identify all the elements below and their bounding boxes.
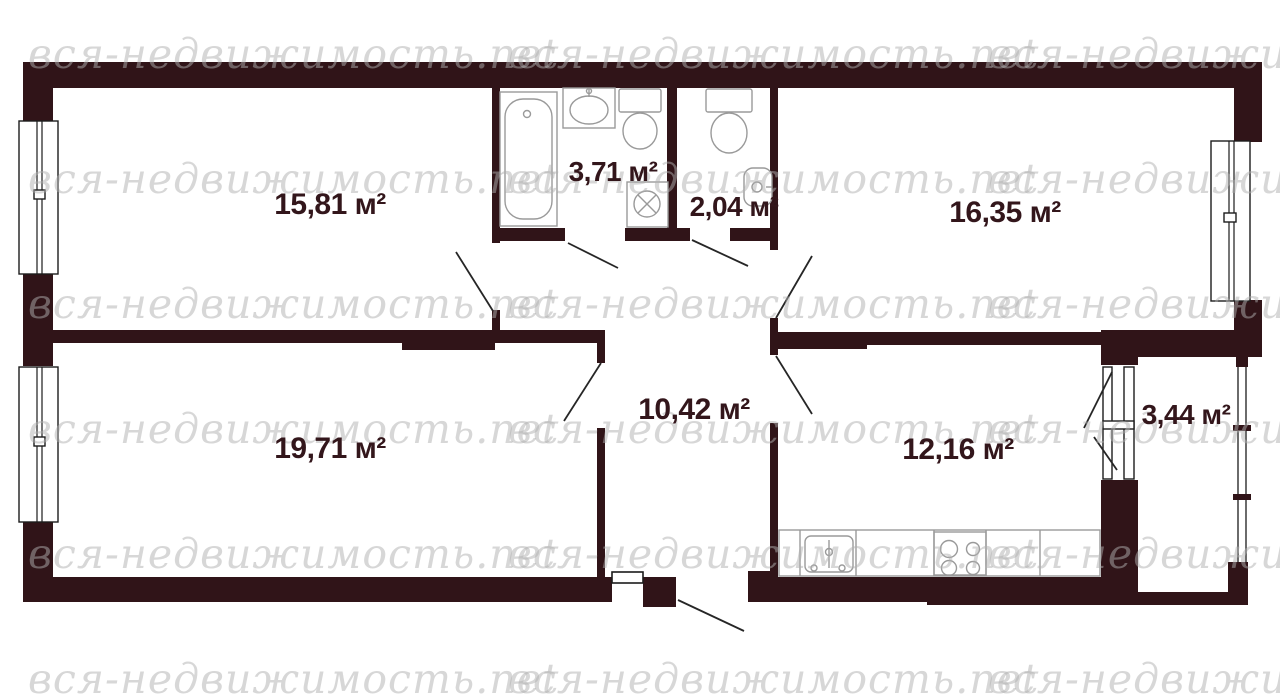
kitchen-sink bbox=[805, 536, 853, 572]
wc-toilet bbox=[706, 89, 752, 153]
bathroom-toilet bbox=[619, 89, 661, 149]
bathroom-sink bbox=[563, 88, 615, 128]
floor-plan: вся-недвижимость.netвся-недвижимость.net… bbox=[0, 0, 1280, 696]
window-right bbox=[1211, 141, 1250, 301]
entry-threshold bbox=[612, 572, 643, 583]
bathtub bbox=[500, 92, 557, 226]
wc-sink bbox=[744, 168, 772, 206]
floor-plan-drawing bbox=[0, 0, 1280, 696]
door-swings bbox=[456, 240, 1117, 631]
balcony-door-block bbox=[1103, 367, 1134, 479]
balcony-glazing bbox=[1233, 367, 1251, 562]
window-left-bottom bbox=[19, 367, 58, 522]
window-left-top bbox=[19, 121, 58, 274]
washing-machine bbox=[627, 182, 668, 227]
stove bbox=[934, 532, 986, 576]
